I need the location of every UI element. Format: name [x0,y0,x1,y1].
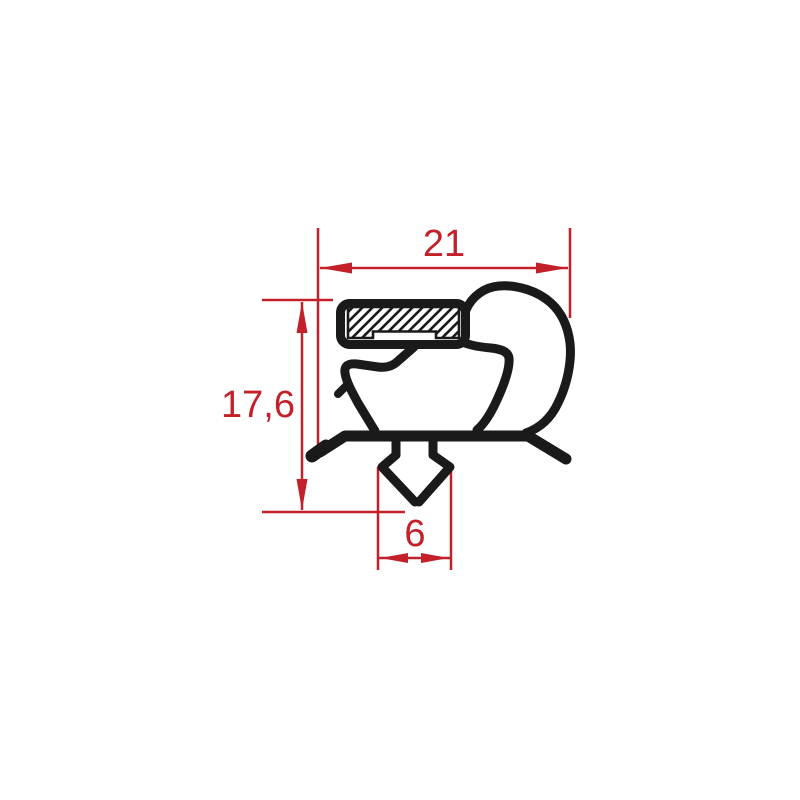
dimension-label-left-height: 17,6 [221,384,295,426]
base-web [320,436,566,459]
gasket-profile-drawing: 21 17,6 6 [0,0,800,800]
anchor-barb-left [382,441,415,502]
inner-lip [345,347,414,431]
dimension-label-top-width: 21 [423,223,465,265]
dimension-label-bottom-width: 6 [404,513,425,555]
arrowhead-top-left [320,263,352,274]
balloon-bulb-outline [466,286,570,433]
arrowhead-left-up [297,302,308,333]
anchor-barb-right [419,441,450,502]
arrowhead-left-down [297,479,308,510]
inner-lip-nub [338,386,346,394]
technical-drawing-canvas: 21 17,6 6 [0,0,800,800]
arrowhead-top-right [536,263,568,274]
left-foot-flap [312,446,326,456]
bulb-inner-fin [458,340,509,430]
